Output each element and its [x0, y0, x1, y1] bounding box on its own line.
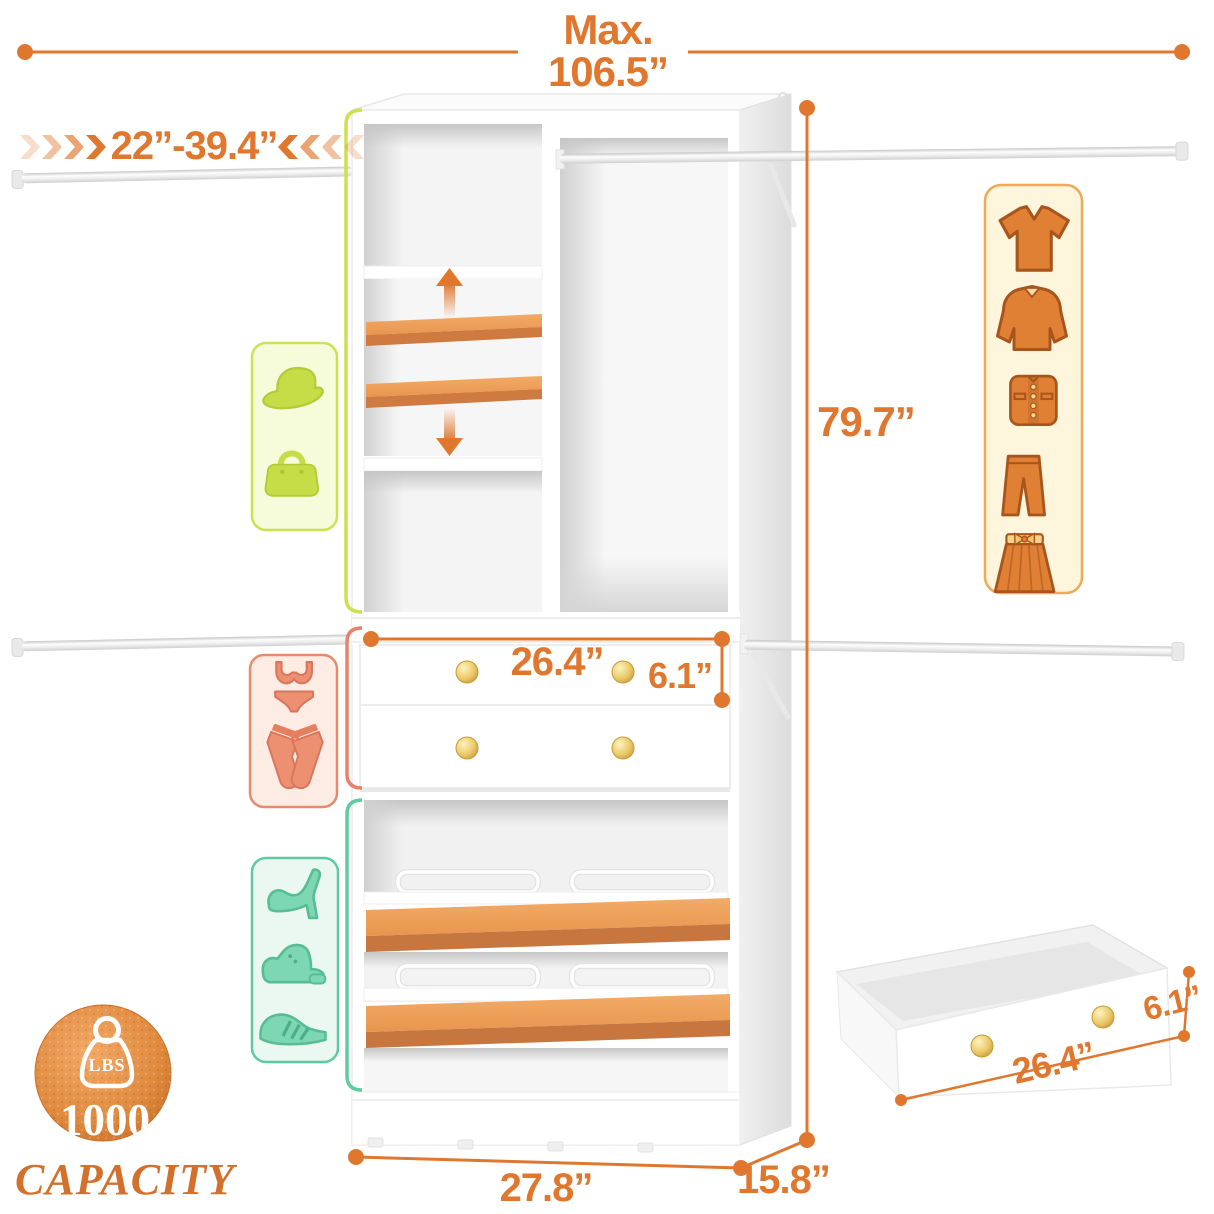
closet-dimension-infographic: Max. 106.5” 22”-39.4” 79.7” 26.4” 6.1” 2… [0, 0, 1214, 1214]
unit-depth-value: 15.8” [737, 1158, 830, 1203]
rod-mid-left [12, 631, 350, 656]
drawer-knob [1092, 1006, 1114, 1028]
drawer-height-value: 6.1” [648, 655, 712, 697]
shoe-panel [252, 858, 338, 1062]
drawer-knob [456, 737, 478, 759]
unit-height-value: 79.7” [817, 398, 915, 446]
badge-value: 1000 [38, 1094, 172, 1146]
drawer-2 [360, 705, 730, 788]
detail-drawer [837, 925, 1171, 1097]
unit-width-value: 27.8” [456, 1166, 636, 1211]
closet-unit [352, 93, 791, 1152]
foot [638, 1143, 653, 1152]
hanging-compartment [560, 138, 728, 612]
foot [368, 1138, 383, 1147]
closet-top-face [352, 94, 791, 110]
max-width-value: 106.5” [520, 48, 696, 96]
closet-base [352, 1092, 740, 1152]
blouse-icon [998, 287, 1067, 350]
closet-side-panel [740, 94, 791, 1145]
foot [458, 1140, 473, 1149]
underwear-panel [250, 655, 337, 807]
adjustable-shelf-zone [364, 268, 542, 456]
infographic-art [0, 0, 1214, 1214]
badge-capacity-label: CAPACITY [5, 1154, 245, 1205]
fixed-shelf [364, 458, 542, 471]
drawer-shadow [360, 788, 730, 792]
max-label: Max. [520, 6, 696, 54]
jacket-icon [1010, 376, 1056, 425]
drawer-width-value: 26.4” [467, 640, 647, 685]
foot [548, 1142, 563, 1151]
accessory-panel [252, 343, 337, 530]
cubby-bottom-left [364, 471, 542, 612]
cubby-top-left [364, 124, 542, 266]
badge-unit-label: LBS [77, 1055, 137, 1076]
rod-range-value: 22”-39.4” [103, 124, 285, 169]
drawer-knob [612, 737, 634, 759]
clothing-panel [985, 185, 1082, 593]
drawer-knob [971, 1035, 993, 1057]
